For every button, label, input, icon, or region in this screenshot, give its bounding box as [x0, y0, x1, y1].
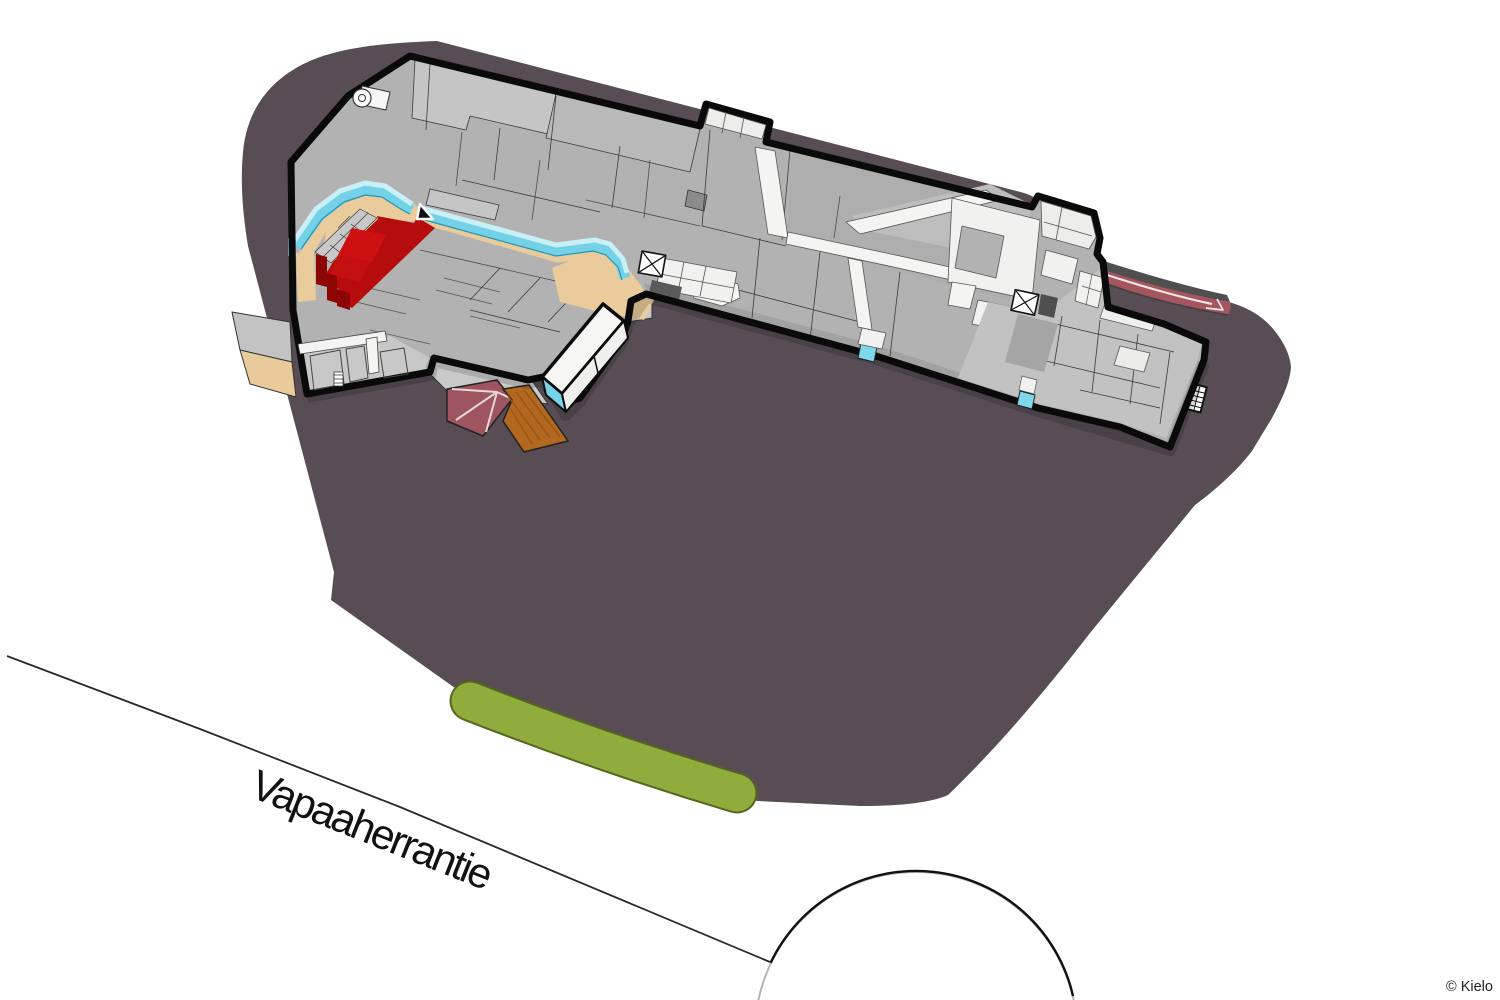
svg-text:© Kielo: © Kielo: [1446, 979, 1493, 995]
svg-text:Vapaaherrantie: Vapaaherrantie: [245, 761, 500, 899]
